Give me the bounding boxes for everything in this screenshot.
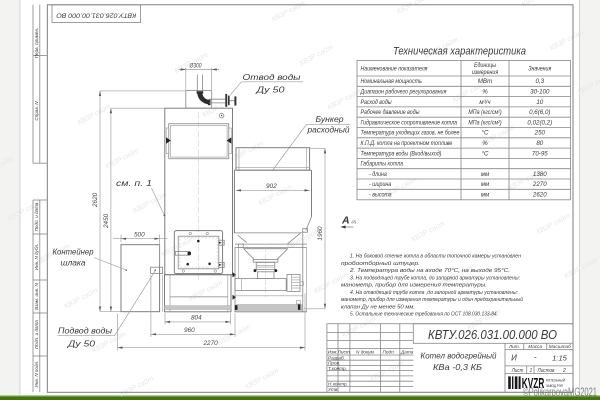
svg-text:Масса: Масса: [528, 344, 542, 349]
svg-text:(2): (2): [352, 219, 358, 224]
svg-text:Подп. и дата: Подп. и дата: [34, 320, 39, 349]
svg-text:%: %: [482, 89, 488, 96]
svg-text:902: 902: [266, 183, 277, 190]
svg-text:И: И: [511, 354, 517, 363]
svg-text:МПа (кгс/см²): МПа (кгс/см²): [468, 119, 501, 126]
svg-text:Температура уходящих газов, не: Температура уходящих газов, не более: [361, 130, 460, 137]
svg-text:Бункер: Бункер: [316, 115, 344, 124]
svg-text:2270: 2270: [532, 181, 547, 188]
svg-text:измерения: измерения: [472, 69, 499, 76]
svg-text:Т.контр.: Т.контр.: [328, 366, 347, 371]
svg-text:шлака: шлака: [61, 259, 86, 268]
svg-text:3. На подводящей трубе котла,: 3. На подводящей трубе котла, до запорно…: [350, 274, 520, 281]
svg-text:Ду 50: Ду 50: [67, 340, 96, 349]
svg-text:-: -: [534, 353, 537, 362]
svg-text:°С: °С: [482, 130, 489, 137]
svg-text:Перв. примен.: Перв. примен.: [34, 28, 39, 59]
svg-text:Температура воды (Вход/выход): Температура воды (Вход/выход): [361, 150, 442, 157]
svg-text:2620: 2620: [532, 192, 547, 199]
svg-text:30-100: 30-100: [530, 89, 550, 96]
svg-text:©PolikarpovaMG2021: ©PolikarpovaMG2021: [523, 387, 597, 399]
svg-text:манометр, прибор для измерения: манометр, прибор для измерения температу…: [341, 296, 524, 303]
svg-text:КОТЕЛЬНЫЙ: КОТЕЛЬНЫЙ: [546, 378, 565, 383]
svg-text:Ø300: Ø300: [189, 62, 202, 69]
svg-text:0,6(6,0): 0,6(6,0): [529, 109, 550, 116]
svg-text:Подвод воды: Подвод воды: [58, 327, 112, 336]
svg-text:Котел водогрейный: Котел водогрейный: [421, 352, 497, 361]
svg-text:Значения: Значения: [528, 66, 552, 73]
svg-text:Номинальная мощность: Номинальная мощность: [361, 78, 422, 85]
svg-text:КВТУ.026.031.00.000 ВО: КВТУ.026.031.00.000 ВО: [56, 12, 137, 19]
svg-text:Контейнер: Контейнер: [53, 248, 94, 257]
svg-text:500: 500: [134, 231, 145, 238]
svg-text:2270: 2270: [203, 340, 219, 347]
svg-text:70-95: 70-95: [532, 150, 548, 157]
svg-text:- высота: - высота: [369, 192, 392, 199]
svg-text:мм: мм: [481, 171, 490, 178]
svg-text:КВЗР сайт: КВЗР сайт: [0, 154, 15, 178]
svg-text:1: 1: [530, 368, 533, 374]
svg-text:1. На боковой стенке котла в: 1. На боковой стенке котла в области топ…: [350, 253, 522, 260]
svg-text:К.П.Д. котла на проектном топл: К.П.Д. котла на проектном топливе: [361, 140, 453, 147]
svg-text:мм: мм: [481, 181, 490, 188]
svg-text:0,02(0,2): 0,02(0,2): [527, 119, 552, 126]
svg-text:10: 10: [536, 99, 543, 106]
svg-text:80: 80: [536, 140, 543, 147]
svg-text:КВЗР сайт: КВЗР сайт: [576, 72, 600, 96]
svg-text:2. Температура воды на входе: 2. Температура воды на входе 70°С, на вы…: [349, 268, 510, 274]
svg-text:Инв. N подл.: Инв. N подл.: [34, 361, 39, 388]
svg-text:- ширина: - ширина: [369, 181, 392, 188]
svg-text:А: А: [341, 215, 350, 227]
svg-text:мм: мм: [481, 192, 490, 199]
svg-text:Листов: Листов: [537, 368, 555, 374]
svg-text:1:15: 1:15: [552, 354, 568, 363]
svg-text:Габариты котла: Габариты котла: [361, 161, 404, 168]
svg-text:расходный: расходный: [306, 125, 349, 134]
svg-text:Справ. N: Справ. N: [34, 101, 39, 121]
svg-text:Дата: Дата: [400, 349, 414, 354]
svg-text:1380: 1380: [533, 171, 547, 178]
svg-text:- длина: - длина: [369, 171, 387, 178]
svg-text:Отвод воды: Отвод воды: [243, 73, 301, 82]
svg-text:Гидравлическое сопротивление к: Гидравлическое сопротивление котла: [361, 119, 458, 126]
svg-text:2450: 2450: [103, 213, 110, 229]
svg-text:N докум.: N докум.: [356, 349, 375, 354]
svg-text:м³/ч: м³/ч: [479, 99, 491, 106]
svg-text:КВТУ.026.031.00.000 ВО: КВТУ.026.031.00.000 ВО: [428, 328, 557, 342]
svg-text:2: 2: [562, 368, 566, 374]
svg-text:Инв. N дубл.: Инв. N дубл.: [34, 244, 39, 271]
svg-text:4. На отводящей трубе котла ,: 4. На отводящей трубе котла ,до запорной…: [350, 289, 518, 296]
svg-text:Техническая характеристика: Техническая характеристика: [393, 46, 526, 58]
svg-text:2620: 2620: [92, 192, 99, 208]
svg-text:0,3: 0,3: [535, 78, 544, 85]
svg-text:Подп.: Подп.: [383, 349, 395, 354]
svg-text:5. Остальные технические треб: 5. Остальные технические требования по О…: [350, 312, 498, 318]
svg-text:см. п. 1: см. п. 1: [116, 178, 152, 188]
svg-text:Расход воды: Расход воды: [361, 99, 392, 106]
svg-text:Диапазон рабочего регулировани: Диапазон рабочего регулирования: [360, 89, 447, 96]
svg-text:Лист: Лист: [511, 368, 523, 374]
svg-text:Подп. и дата: Подп. и дата: [34, 202, 39, 231]
svg-text:МПа (кгс/см²): МПа (кгс/см²): [468, 109, 501, 116]
svg-text:%: %: [482, 140, 488, 147]
svg-text:пробоотборный штуцер.: пробоотборный штуцер.: [341, 260, 420, 267]
svg-text:Ду 50: Ду 50: [255, 85, 285, 94]
svg-text:804: 804: [191, 315, 202, 322]
svg-text:МВт: МВт: [478, 78, 492, 85]
svg-text:Лит.: Лит.: [508, 344, 520, 349]
svg-text:°С: °С: [482, 150, 489, 157]
svg-text:Утв.: Утв.: [328, 387, 339, 392]
svg-text:манометр, прибор для измерения: манометр, прибор для измерения температу…: [341, 283, 487, 289]
svg-text:КВа -0,3 КБ: КВа -0,3 КБ: [433, 363, 483, 372]
svg-text:клапан Ду не менее 50 мм.: клапан Ду не менее 50 мм.: [341, 304, 415, 310]
svg-text:Масштаб: Масштаб: [549, 344, 571, 349]
svg-text:Взам. инв. N: Взам. инв. N: [34, 282, 39, 309]
svg-text:250: 250: [534, 130, 546, 137]
svg-text:1960: 1960: [317, 226, 324, 241]
svg-text:960: 960: [184, 327, 195, 334]
svg-text:Наименование показателя: Наименование показателя: [361, 66, 429, 73]
svg-text:Изм.Лист: Изм.Лист: [328, 349, 350, 354]
svg-text:Рабочее давление воды: Рабочее давление воды: [361, 109, 420, 116]
